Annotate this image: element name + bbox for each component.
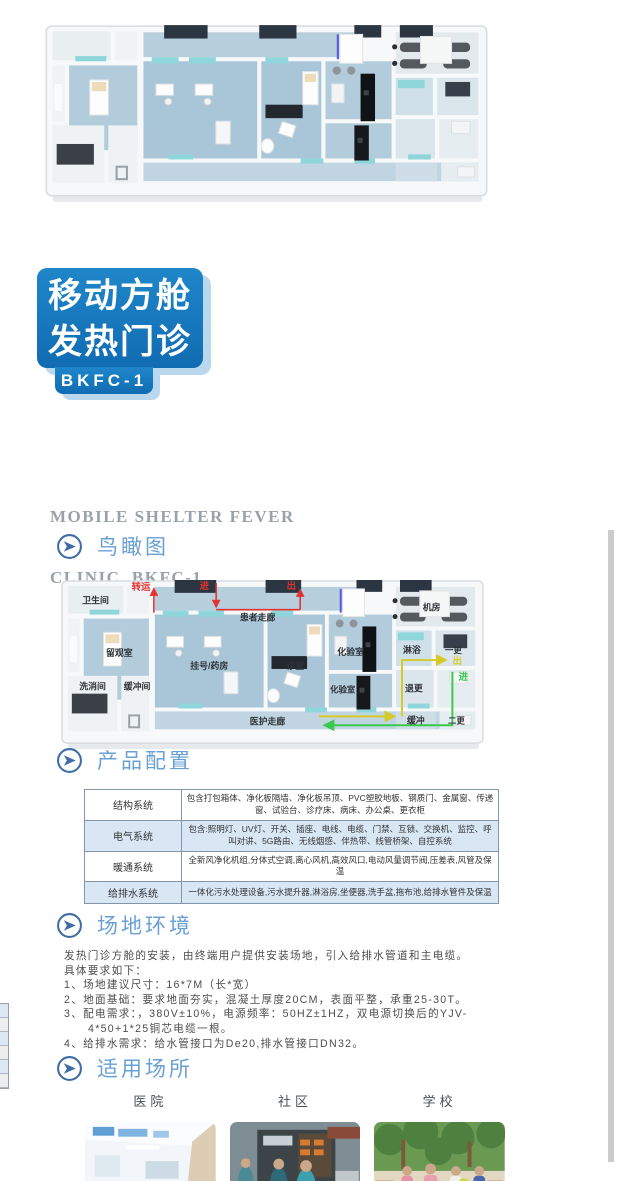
place-school: 学校 (374, 1091, 505, 1181)
site-text-line: 1、场地建议尺寸：16*7M（长*宽） (64, 978, 534, 993)
config-table: 结构系统 包含打包箱体、净化板隔墙、净化板吊顶、PVC塑胶地板、钢质门、金属窗、… (84, 789, 499, 904)
table-row: 给排水系统 一体化污水处理设备,污水提升器,淋浴房,坐便器,洗手盆,拖布池,给排… (85, 882, 499, 904)
room-label-buffer: 缓冲 (407, 714, 425, 725)
table-row: 电气系统 包含:照明灯、UV灯、开关、插座、电线、电缆、门禁、互锁、交换机、监控… (85, 820, 499, 851)
logo-model-tab: BKFC-1 (55, 367, 153, 394)
room-label-buffer-room: 缓冲间 (124, 681, 151, 692)
place-label: 学校 (423, 1091, 457, 1110)
logo-line2: 发热门诊 (37, 319, 203, 365)
site-text-line: 具体要求如下： (64, 964, 534, 979)
room-label-disinfection: 洗消间 (79, 681, 106, 692)
room-label-machine-room: 机房 (423, 602, 441, 613)
page-edge-bar (608, 530, 614, 1162)
site-requirements-text: 发热门诊方舱的安装，由终端用户提供安装场地，引入给排水管道和主电缆。 具体要求如… (64, 949, 534, 1051)
table-row: 结构系统 包含打包箱体、净化板隔墙、净化板吊顶、PVC塑胶地板、钢质门、金属窗、… (85, 790, 499, 821)
brand-logo: 移动方舱 发热门诊 BKFC-1 (37, 268, 237, 408)
flow-label-in-green: 进 (459, 671, 469, 682)
room-label-consulting: 诊室 (286, 660, 304, 671)
section-header-places: 适用场所 (56, 1053, 193, 1083)
arrow-circle-icon (56, 1055, 83, 1082)
site-text-line: 3、配电需求：，380V±10%，电源频率：50HZ±1HZ，双电源切换后的YJ… (64, 1007, 534, 1022)
config-row-value: 包含打包箱体、净化板隔墙、净化板吊顶、PVC塑胶地板、钢质门、金属窗、传递窗、试… (182, 790, 499, 821)
flow-label-out-yellow: 出 (453, 655, 462, 666)
place-label: 医院 (133, 1091, 167, 1110)
place-community: 社区 (230, 1091, 361, 1181)
room-label-change-1: 一更 (445, 645, 462, 655)
room-label-registration-pharmacy: 挂号/药房 (190, 660, 228, 671)
section-title-site: 场地环境 (97, 910, 193, 940)
community-photo (230, 1122, 361, 1181)
site-text-line: 2、地面基础：要求地面夯实，混凝土厚度20CM，表面平整，承重25-30T。 (64, 993, 534, 1008)
config-row-label: 结构系统 (85, 790, 182, 821)
brochure-page: 移动方舱 发热门诊 BKFC-1 MOBILE SHELTER FEVER CL… (0, 0, 627, 1181)
annotated-floorplan-graphic: 转运 进 出 出 进 卫生间 留观室 洗消间 缓冲间 挂号/药房 诊室 患者走廊… (60, 577, 485, 753)
config-row-value: 一体化污水处理设备,污水提升器,淋浴房,坐便器,洗手盆,拖布池,给排水管件及保温 (182, 882, 499, 904)
section-title-aerial: 鸟瞰图 (97, 531, 169, 561)
room-label-change-out: 退更 (405, 684, 423, 694)
room-label-lab-2: 化验室 (330, 685, 356, 695)
config-row-value: 全新风净化机组,分体式空调,离心风机,高效风口,电动风量调节阀,压差表,风管及保… (182, 851, 499, 882)
config-row-label: 电气系统 (85, 820, 182, 851)
places-row: 医院 社区 (85, 1091, 505, 1181)
room-label-patient-corridor: 患者走廊 (240, 612, 276, 623)
flow-label-out-red: 出 (287, 580, 296, 591)
aerial-render-image (44, 22, 489, 214)
room-label-change-2: 二更 (448, 715, 465, 725)
aerial-render-graphic (44, 22, 489, 206)
flow-label-transfer: 转运 (132, 581, 151, 592)
room-label-shower: 淋浴 (403, 644, 422, 655)
site-text-line: 发热门诊方舱的安装，由终端用户提供安装场地，引入给排水管道和主电缆。 (64, 949, 534, 964)
hospital-photo (85, 1122, 216, 1181)
config-row-value: 包含:照明灯、UV灯、开关、插座、电线、电缆、门禁、互锁、交换机、监控、呼叫对讲… (182, 820, 499, 851)
section-title-config: 产品配置 (97, 745, 193, 775)
section-title-places: 适用场所 (97, 1053, 193, 1083)
table-row: 暖通系统 全新风净化机组,分体式空调,离心风机,高效风口,电动风量调节阀,压差表… (85, 851, 499, 882)
subtitle-line1: MOBILE SHELTER FEVER (50, 507, 295, 527)
annotated-floorplan-image: 转运 进 出 出 进 卫生间 留观室 洗消间 缓冲间 挂号/药房 诊室 患者走廊… (60, 577, 485, 753)
room-label-lab-1: 化验室 (337, 646, 364, 657)
arrow-circle-icon (56, 747, 83, 774)
room-label-toilet: 卫生间 (82, 595, 109, 606)
arrow-circle-icon (56, 533, 83, 560)
section-header-site: 场地环境 (56, 910, 193, 940)
room-label-staff-corridor: 医护走廊 (250, 715, 286, 726)
site-text-line: 4、给排水需求：给水管接口为De20,排水管接口DN32。 (64, 1037, 534, 1052)
arrow-circle-icon (56, 912, 83, 939)
section-header-aerial: 鸟瞰图 (56, 531, 169, 561)
config-row-label: 暖通系统 (85, 851, 182, 882)
adjacent-table-sliver (0, 1003, 9, 1089)
flow-label-in-red: 进 (200, 580, 210, 591)
place-hospital: 医院 (85, 1091, 216, 1181)
config-row-label: 给排水系统 (85, 882, 182, 904)
room-label-observation: 留观室 (106, 647, 133, 658)
school-photo (374, 1122, 505, 1181)
site-text-line: 4*50+1*25铜芯电缆一根。 (64, 1022, 534, 1037)
logo-line1: 移动方舱 (37, 273, 203, 319)
logo-block: 移动方舱 发热门诊 (37, 268, 203, 368)
place-label: 社区 (278, 1091, 312, 1110)
section-header-config: 产品配置 (56, 745, 193, 775)
